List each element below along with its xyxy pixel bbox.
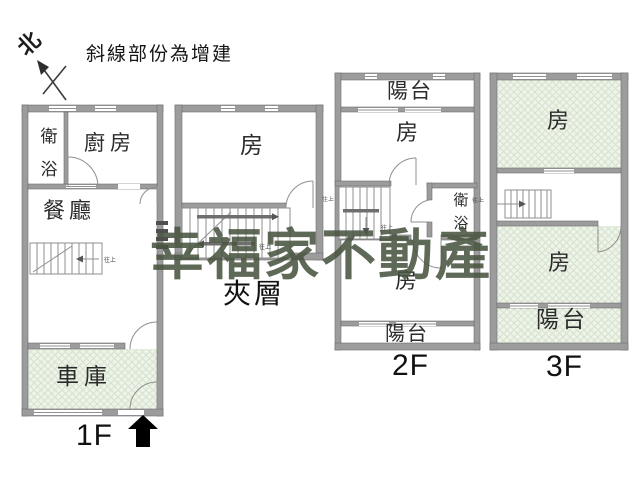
room-label-room-top-3f: 房 — [547, 109, 569, 133]
stairs-up-note-3f-outer: 往上 — [472, 196, 484, 205]
doors-mezzanine — [286, 181, 313, 208]
room-label-balcony-bottom-2f: 陽台 — [385, 323, 429, 345]
compass-north-label: 北 — [13, 27, 46, 60]
legend-note: 斜線部份為增建 — [86, 39, 233, 66]
floorplan-canvas: 北 斜線部份為增建 — [0, 0, 640, 480]
room-label-balcony-3f: 陽台 — [536, 307, 588, 332]
floor-label-3f: 3F — [546, 350, 583, 384]
floor-label-1f: 1F — [76, 419, 113, 453]
stairs-up-note-1f: 往上 — [104, 256, 116, 264]
stairs-1f: 往上 — [30, 243, 116, 274]
room-label-room-bottom-3f: 房 — [548, 251, 570, 275]
room-label-garage-1f: 車庫 — [56, 364, 112, 389]
agency-watermark: 幸福家不動產 — [150, 210, 492, 290]
room-label-kitchen-1f: 廚房 — [84, 132, 136, 155]
room-label-mezzanine: 房 — [240, 133, 263, 158]
room-label-room-top-2f: 房 — [396, 121, 418, 145]
stairs-up-note-2f-outer: 往上 — [322, 195, 334, 204]
stairs-3f — [497, 190, 551, 218]
room-label-bathroom-1f: 衛浴 — [38, 120, 60, 186]
room-label-balcony-top-2f: 陽台 — [387, 80, 433, 103]
entrance-arrow-icon — [128, 415, 158, 447]
floor-label-2f: 2F — [392, 349, 429, 383]
room-label-dining-1f: 餐廳 — [43, 199, 95, 223]
